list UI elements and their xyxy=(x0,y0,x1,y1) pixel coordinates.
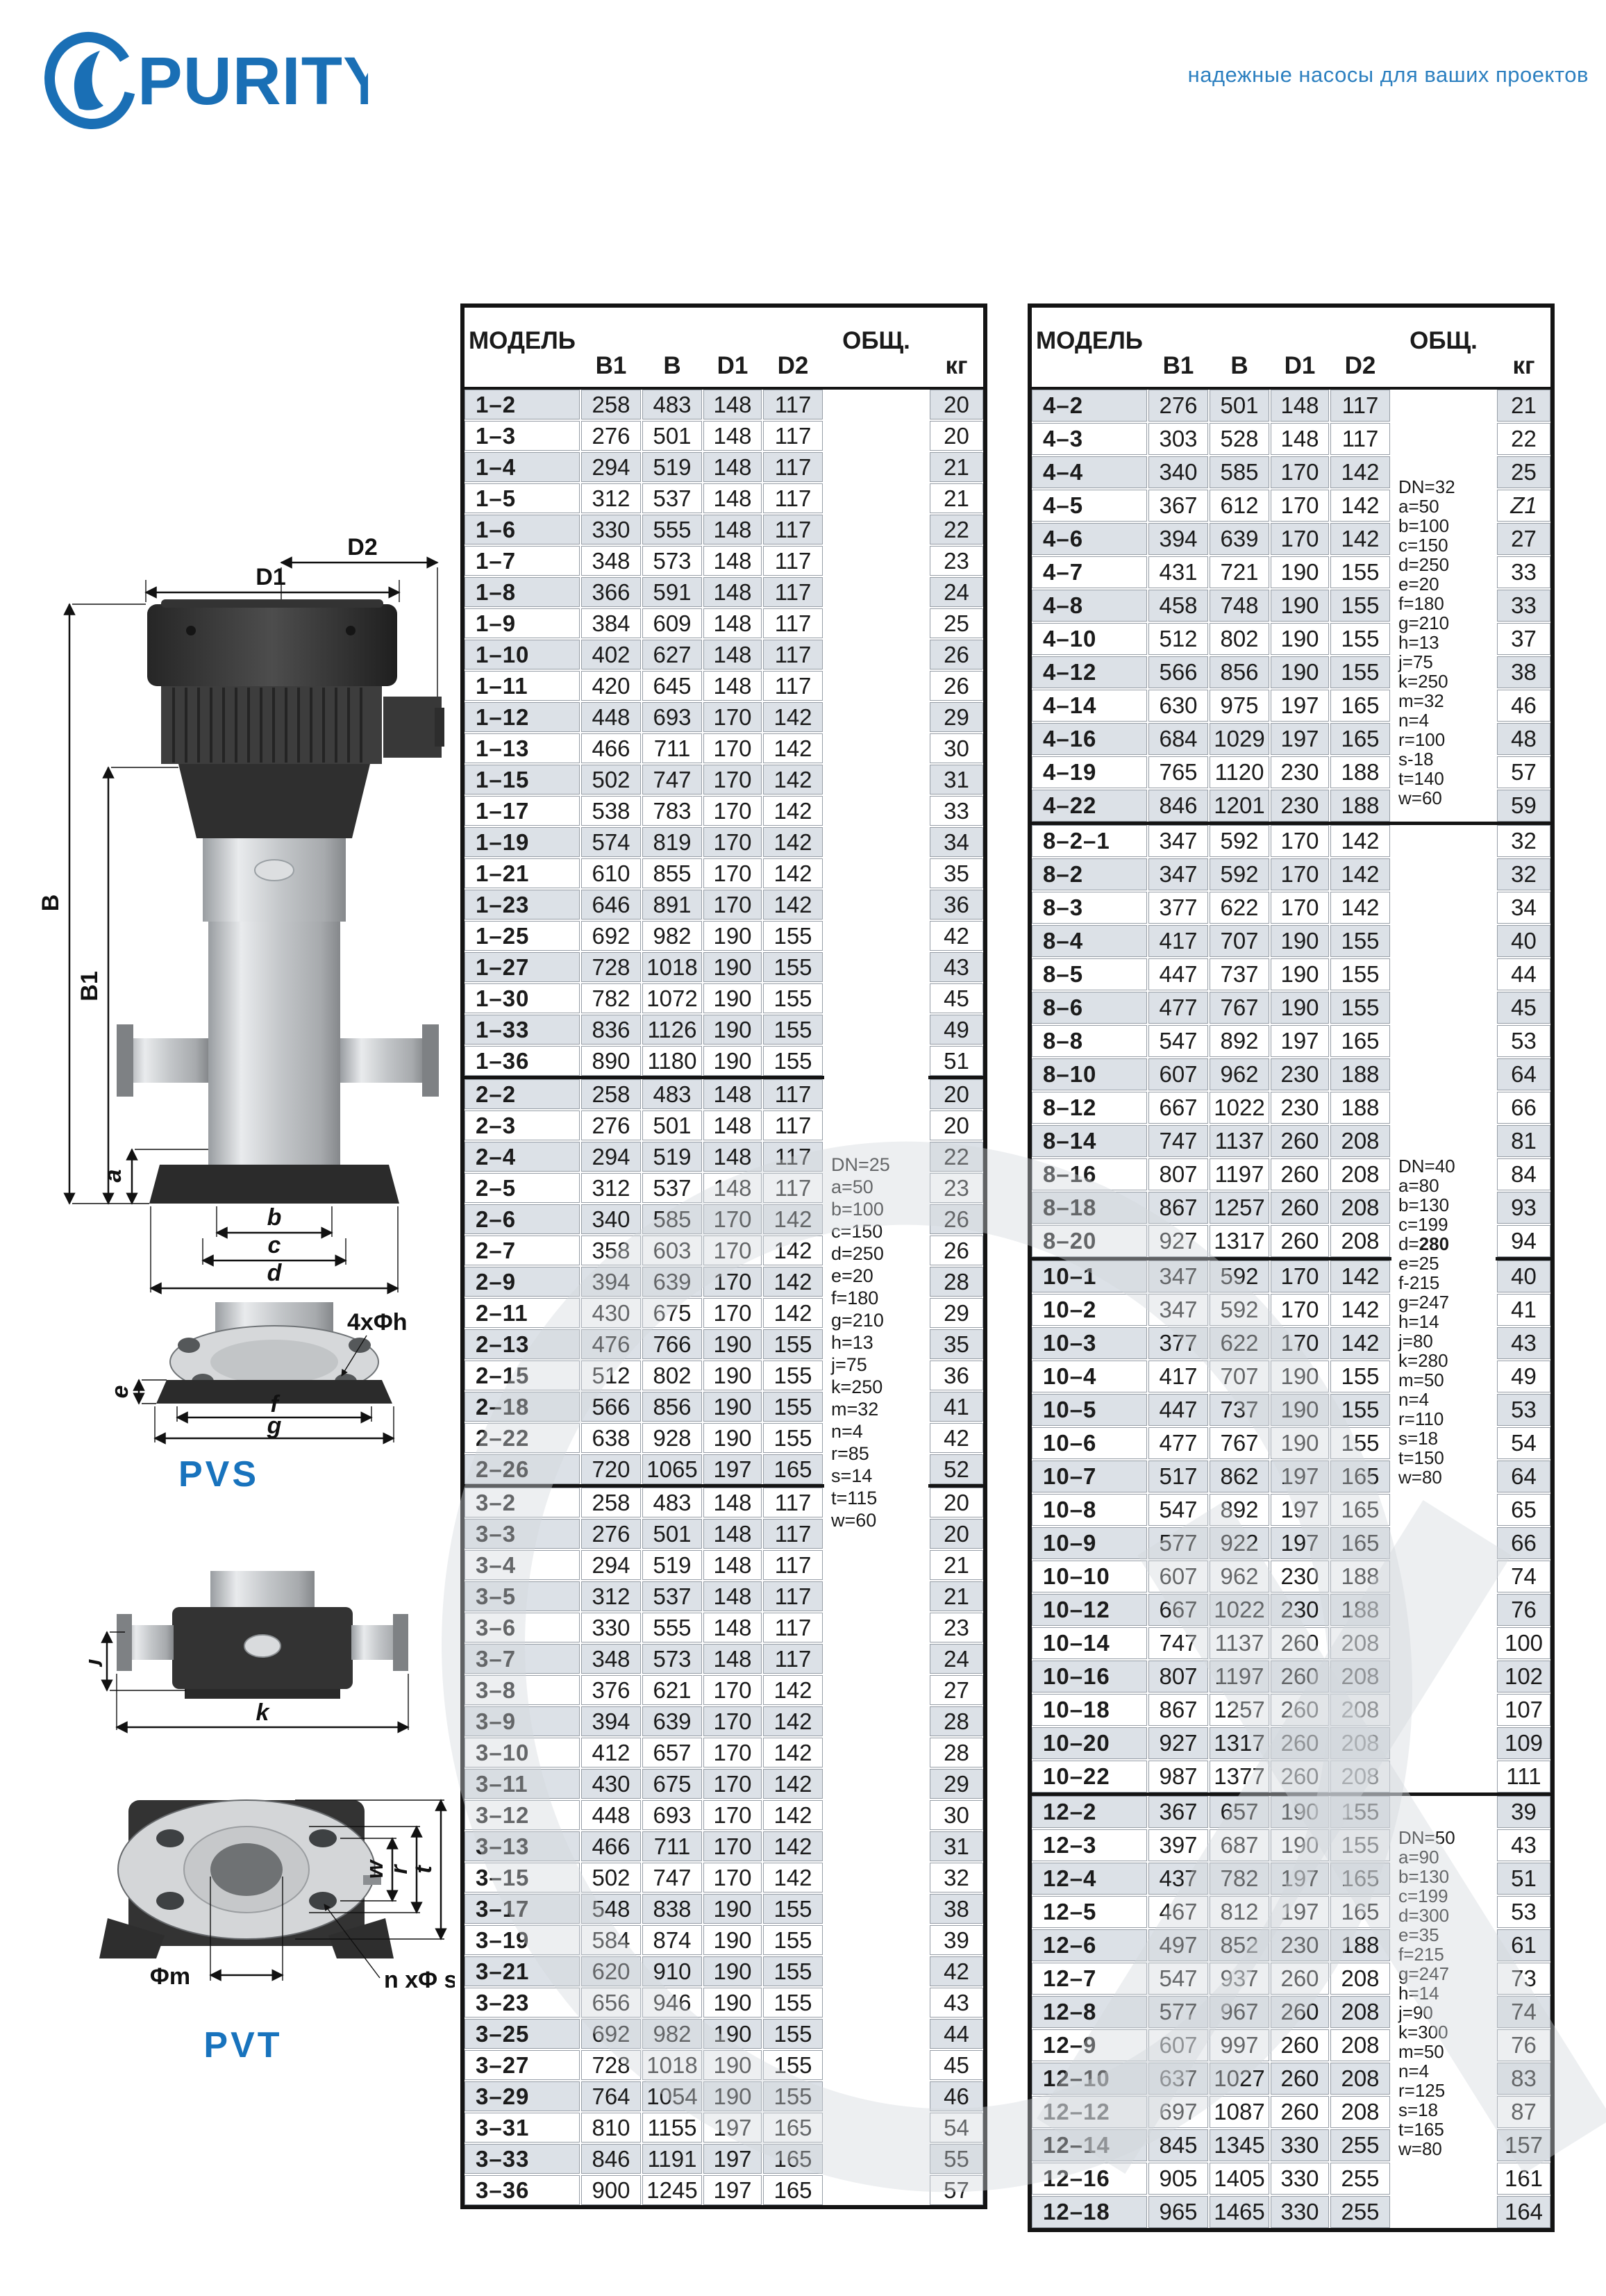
dimension-cell: 477 xyxy=(1148,1426,1209,1460)
dimension-cell: 148 xyxy=(703,639,762,670)
dimension-cell: 437 xyxy=(1148,1862,1209,1895)
dimension-cell: 276 xyxy=(580,420,642,451)
dimension-cell: 417 xyxy=(1148,924,1209,958)
dimension-cell: 891 xyxy=(642,889,703,920)
dimension-cell: 807 xyxy=(1148,1158,1209,1191)
dimension-cell: 1197 xyxy=(1209,1158,1270,1191)
weight-cell: 32 xyxy=(1496,824,1553,858)
model-cell: 1–23 xyxy=(462,889,580,920)
dimension-cell: 155 xyxy=(1330,556,1391,589)
dimension-cell: 190 xyxy=(1270,924,1330,958)
dimension-cell: 1029 xyxy=(1209,722,1270,756)
dimension-cell: 566 xyxy=(1148,656,1209,689)
dimension-cell: 170 xyxy=(1270,824,1330,858)
dimension-cell: 142 xyxy=(762,1297,823,1329)
dimension-cell: 890 xyxy=(580,1045,642,1078)
dimension-cell: 117 xyxy=(762,639,823,670)
dimension-cell: 577 xyxy=(1148,1526,1209,1560)
weight-cell: 26 xyxy=(929,1204,985,1235)
dimension-cell: 927 xyxy=(1148,1224,1209,1259)
column-header: МОДЕЛЬ xyxy=(1030,306,1148,388)
dimension-cell: 592 xyxy=(1209,1259,1270,1294)
weight-cell: 27 xyxy=(929,1674,985,1706)
dimension-cell: 477 xyxy=(1148,991,1209,1024)
dimension-cell: 312 xyxy=(580,483,642,514)
dimension-cell: 190 xyxy=(703,951,762,983)
spec-line: r=85 xyxy=(831,1442,928,1465)
weight-cell: 34 xyxy=(1496,891,1553,924)
weight-cell: 43 xyxy=(929,1987,985,2018)
spec-line: m=32 xyxy=(1398,691,1496,710)
dimension-cell: 170 xyxy=(703,1862,762,1893)
dimension-cell: 607 xyxy=(1148,1058,1209,1091)
model-cell: 1–33 xyxy=(462,1014,580,1045)
model-cell: 10–2 xyxy=(1030,1293,1148,1326)
dimension-cell: 276 xyxy=(580,1110,642,1141)
model-cell: 2–18 xyxy=(462,1391,580,1422)
dimension-cell: 417 xyxy=(1148,1360,1209,1393)
dimension-cell: 155 xyxy=(1330,656,1391,689)
dimension-cell: 258 xyxy=(580,388,642,420)
weight-cell: 107 xyxy=(1496,1693,1553,1727)
dimension-cell: 846 xyxy=(580,2143,642,2174)
weight-cell: 28 xyxy=(929,1706,985,1737)
model-cell: 1–21 xyxy=(462,858,580,889)
model-cell: 1–8 xyxy=(462,576,580,608)
dimension-cell: 260 xyxy=(1270,1760,1330,1795)
dimension-cell: 412 xyxy=(580,1737,642,1768)
dimension-cell: 148 xyxy=(703,1612,762,1643)
weight-cell: 164 xyxy=(1496,2195,1553,2230)
dimension-cell: 208 xyxy=(1330,1627,1391,1660)
dimension-cell: 197 xyxy=(703,2174,762,2207)
dimension-cell: 148 xyxy=(703,608,762,639)
pvs-side-view: j k xyxy=(89,1571,415,1745)
dimension-cell: 862 xyxy=(1209,1460,1270,1493)
dimension-cell: 1022 xyxy=(1209,1091,1270,1124)
model-cell: 4–22 xyxy=(1030,789,1148,824)
dimension-cell: 584 xyxy=(580,1924,642,1956)
dimension-cell: 155 xyxy=(1330,924,1391,958)
model-cell: 3–8 xyxy=(462,1674,580,1706)
dimension-cell: 170 xyxy=(1270,489,1330,522)
dimension-cell: 155 xyxy=(1330,1360,1391,1393)
dimension-cell: 165 xyxy=(1330,1493,1391,1526)
dimension-cell: 812 xyxy=(1209,1895,1270,1929)
dimension-cell: 117 xyxy=(762,1110,823,1141)
dimension-cell: 190 xyxy=(1270,1829,1330,1862)
weight-cell: 20 xyxy=(929,1486,985,1519)
weight-cell: 109 xyxy=(1496,1727,1553,1760)
dimension-cell: 208 xyxy=(1330,1191,1391,1224)
dimension-cell: 476 xyxy=(580,1329,642,1360)
dimension-cell: 117 xyxy=(762,1643,823,1674)
model-cell: 12–12 xyxy=(1030,2095,1148,2129)
dimension-cell: 188 xyxy=(1330,1593,1391,1627)
model-cell: 4–16 xyxy=(1030,722,1148,756)
spec-line: DN=50 xyxy=(1398,1828,1496,1847)
purity-logo-icon xyxy=(38,26,142,134)
dimension-cell: 230 xyxy=(1270,1929,1330,1962)
model-cell: 12–14 xyxy=(1030,2129,1148,2162)
weight-cell: 44 xyxy=(1496,958,1553,991)
model-cell: 1–15 xyxy=(462,764,580,795)
dimension-cell: 684 xyxy=(1148,722,1209,756)
weight-cell: 30 xyxy=(929,1799,985,1831)
spec-line: c=150 xyxy=(1398,535,1496,555)
weight-cell: 157 xyxy=(1496,2129,1553,2162)
weight-cell: 20 xyxy=(929,1518,985,1549)
model-cell: 1–36 xyxy=(462,1045,580,1078)
weight-cell: 49 xyxy=(929,1014,985,1045)
dimension-cell: 258 xyxy=(580,1078,642,1110)
purity-logo: PURITY xyxy=(35,26,368,134)
spec-line: k=300 xyxy=(1398,2022,1496,2042)
dimension-cell: 190 xyxy=(1270,1360,1330,1393)
dimension-cell: 155 xyxy=(762,1045,823,1078)
weight-cell: 93 xyxy=(1496,1191,1553,1224)
dimension-cell: 537 xyxy=(642,1581,703,1612)
weight-cell: 22 xyxy=(929,514,985,545)
dimension-cell: 975 xyxy=(1209,689,1270,722)
dimension-cell: 170 xyxy=(703,889,762,920)
spec-line: d=250 xyxy=(1398,555,1496,574)
weight-cell: 20 xyxy=(929,1078,985,1110)
dimension-cell: 962 xyxy=(1209,1058,1270,1091)
spec-line: b=130 xyxy=(1398,1867,1496,1886)
dimension-cell: 148 xyxy=(703,1110,762,1141)
dimension-cell: 707 xyxy=(1209,1360,1270,1393)
model-cell: 2–9 xyxy=(462,1266,580,1297)
pvt-flange-view: Φm n xΦ s w r t xyxy=(66,1772,455,2005)
dimension-cell: 1054 xyxy=(642,2081,703,2112)
model-cell: 8–18 xyxy=(1030,1191,1148,1224)
dimension-cell: 630 xyxy=(1148,689,1209,722)
pvs-dimension-drawing: D2 D1 B B1 a b c d xyxy=(42,538,444,1445)
dimension-cell: 165 xyxy=(1330,722,1391,756)
dimension-cell: 946 xyxy=(642,1987,703,2018)
dimension-cell: 397 xyxy=(1148,1829,1209,1862)
dimension-cell: 148 xyxy=(703,1643,762,1674)
weight-cell: 38 xyxy=(929,1893,985,1924)
dimension-cell: 783 xyxy=(642,795,703,826)
dimension-cell: 155 xyxy=(1330,1829,1391,1862)
model-cell: 1–2 xyxy=(462,388,580,420)
dimension-cell: 208 xyxy=(1330,1124,1391,1158)
dimension-cell: 230 xyxy=(1270,756,1330,789)
dimension-cell: 340 xyxy=(580,1204,642,1235)
dimension-cell: 260 xyxy=(1270,1158,1330,1191)
dimension-cell: 117 xyxy=(762,1486,823,1519)
dimension-cell: 190 xyxy=(1270,958,1330,991)
dimension-cell: 188 xyxy=(1330,756,1391,789)
spec-line: k=280 xyxy=(1398,1351,1496,1370)
spec-line: w=60 xyxy=(831,1509,928,1531)
dimension-cell: 170 xyxy=(703,1737,762,1768)
weight-cell: 94 xyxy=(1496,1224,1553,1259)
dimension-cell: 501 xyxy=(642,1110,703,1141)
weight-cell: 42 xyxy=(929,1956,985,1987)
dimension-cell: 765 xyxy=(1148,756,1209,789)
spec-line: m=32 xyxy=(831,1398,928,1420)
model-cell: 10–22 xyxy=(1030,1760,1148,1795)
spec-line: j=90 xyxy=(1398,2003,1496,2022)
dimension-cell: 838 xyxy=(642,1893,703,1924)
dimension-cell: 982 xyxy=(642,920,703,951)
weight-cell: 40 xyxy=(1496,924,1553,958)
dimension-cell: 155 xyxy=(1330,589,1391,622)
model-cell: 4–8 xyxy=(1030,589,1148,622)
weight-cell: 66 xyxy=(1496,1091,1553,1124)
dimension-cell: 208 xyxy=(1330,1693,1391,1727)
dimension-cell: 330 xyxy=(580,514,642,545)
weight-cell: 26 xyxy=(929,639,985,670)
dimension-cell: 294 xyxy=(580,1141,642,1172)
dimension-cell: 720 xyxy=(580,1454,642,1486)
spec-line: s=18 xyxy=(1398,1429,1496,1448)
dimension-cell: 347 xyxy=(1148,858,1209,891)
dim-label-b1: B1 xyxy=(76,971,103,1001)
model-cell: 3–27 xyxy=(462,2049,580,2081)
dimension-cell: 142 xyxy=(1330,891,1391,924)
spec-line: b=100 xyxy=(831,1198,928,1220)
spec-line: g=247 xyxy=(1398,1964,1496,1983)
dimension-cell: 142 xyxy=(1330,456,1391,489)
weight-cell: 26 xyxy=(929,1235,985,1266)
dimension-cell: 802 xyxy=(1209,622,1270,656)
weight-cell: 53 xyxy=(1496,1393,1553,1426)
dim-label-m: Φm xyxy=(150,1963,190,1990)
dimension-cell: 170 xyxy=(703,733,762,764)
dimension-cell: 965 xyxy=(1148,2195,1209,2230)
weight-cell: 45 xyxy=(1496,991,1553,1024)
dimension-cell: 190 xyxy=(703,1924,762,1956)
dimension-cell: 766 xyxy=(642,1329,703,1360)
spec-line: g=247 xyxy=(1398,1292,1496,1312)
dimension-cell: 330 xyxy=(1270,2162,1330,2195)
dimension-cell: 230 xyxy=(1270,1593,1330,1627)
dimension-cell: 117 xyxy=(762,388,823,420)
dimension-cell: 622 xyxy=(1209,891,1270,924)
dimension-cell: 170 xyxy=(703,1204,762,1235)
dimension-cell: 260 xyxy=(1270,2095,1330,2129)
dimension-cell: 260 xyxy=(1270,1660,1330,1693)
table-row: 1–2258483148117DN=25a=50b=100c=150d=250e… xyxy=(462,388,985,420)
model-cell: 4–2 xyxy=(1030,388,1148,422)
spec-line: e=35 xyxy=(1398,1925,1496,1945)
model-cell: 4–12 xyxy=(1030,656,1148,689)
dimension-cell: 982 xyxy=(642,2018,703,2049)
spec-line: e=20 xyxy=(1398,574,1496,594)
dimension-cell: 747 xyxy=(642,1862,703,1893)
dimension-cell: 117 xyxy=(762,1172,823,1204)
model-cell: 8–2–1 xyxy=(1030,824,1148,858)
dimension-cell: 170 xyxy=(1270,456,1330,489)
dimension-cell: 276 xyxy=(1148,388,1209,422)
dim-label-t: t xyxy=(410,1865,437,1874)
dimension-cell: 170 xyxy=(703,701,762,733)
dimension-cell: 155 xyxy=(762,2081,823,2112)
dimension-cell: 260 xyxy=(1270,1124,1330,1158)
dimension-cell: 627 xyxy=(642,639,703,670)
logo-text: PURITY xyxy=(137,43,368,119)
weight-cell: 45 xyxy=(929,2049,985,2081)
weight-cell: 35 xyxy=(929,1329,985,1360)
dimension-cell: 519 xyxy=(642,1141,703,1172)
model-cell: 8–3 xyxy=(1030,891,1148,924)
dimension-cell: 657 xyxy=(1209,1795,1270,1829)
model-cell: 2–5 xyxy=(462,1172,580,1204)
dimension-cell: 165 xyxy=(762,1454,823,1486)
dimension-cell: 836 xyxy=(580,1014,642,1045)
dimension-cell: 190 xyxy=(703,2018,762,2049)
dimension-cell: 142 xyxy=(762,1706,823,1737)
dimension-cell: 519 xyxy=(642,1549,703,1581)
spec-line: n=4 xyxy=(1398,2061,1496,2081)
spec-line: f-215 xyxy=(1398,1273,1496,1292)
weight-cell: 66 xyxy=(1496,1526,1553,1560)
dimension-cell: 142 xyxy=(1330,1326,1391,1360)
dimension-cell: 1072 xyxy=(642,983,703,1014)
model-cell: 8–8 xyxy=(1030,1024,1148,1058)
weight-cell: 64 xyxy=(1496,1460,1553,1493)
dim-label-d: d xyxy=(267,1260,283,1286)
dimension-cell: 142 xyxy=(762,1235,823,1266)
weight-cell: 61 xyxy=(1496,1929,1553,1962)
spec-line: d=250 xyxy=(831,1242,928,1265)
dimension-cell: 260 xyxy=(1270,1224,1330,1259)
weight-cell: 36 xyxy=(929,1360,985,1391)
weight-cell: 37 xyxy=(1496,622,1553,656)
dimension-cell: 466 xyxy=(580,733,642,764)
spec-line: d=300 xyxy=(1398,1906,1496,1925)
dimension-cell: 377 xyxy=(1148,891,1209,924)
spec-line: t=150 xyxy=(1398,1448,1496,1467)
model-cell: 8–12 xyxy=(1030,1091,1148,1124)
weight-cell: 76 xyxy=(1496,1593,1553,1627)
dimension-cell: 1065 xyxy=(642,1454,703,1486)
dim-label-w: w xyxy=(362,1858,388,1879)
dimension-cell: 737 xyxy=(1209,1393,1270,1426)
weight-cell: 22 xyxy=(1496,422,1553,456)
dimension-cell: 190 xyxy=(703,1956,762,1987)
spec-line: h=14 xyxy=(1398,1312,1496,1331)
weight-cell: 53 xyxy=(1496,1895,1553,1929)
spec-line: t=165 xyxy=(1398,2120,1496,2139)
column-header: B xyxy=(642,306,703,388)
dim-label-c: c xyxy=(268,1232,281,1258)
model-cell: 4–3 xyxy=(1030,422,1148,456)
dimension-cell: 347 xyxy=(1148,824,1209,858)
dimension-cell: 538 xyxy=(580,795,642,826)
model-cell: 3–4 xyxy=(462,1549,580,1581)
dimension-cell: 612 xyxy=(1209,489,1270,522)
model-cell: 4–10 xyxy=(1030,622,1148,656)
dimension-cell: 255 xyxy=(1330,2162,1391,2195)
dimension-cell: 675 xyxy=(642,1297,703,1329)
weight-cell: 46 xyxy=(929,2081,985,2112)
dimension-cell: 142 xyxy=(762,1737,823,1768)
weight-cell: 44 xyxy=(929,2018,985,2049)
dimension-cell: 1197 xyxy=(1209,1660,1270,1693)
weight-cell: 74 xyxy=(1496,1995,1553,2029)
spec-line: m=50 xyxy=(1398,2042,1496,2061)
dimension-cell: 155 xyxy=(762,951,823,983)
dimension-cell: 170 xyxy=(703,1768,762,1799)
spec-line: s=18 xyxy=(1398,2100,1496,2120)
dimension-cell: 148 xyxy=(703,1141,762,1172)
dimension-cell: 1022 xyxy=(1209,1593,1270,1627)
dimension-cell: 155 xyxy=(1330,1393,1391,1426)
dimension-cell: 748 xyxy=(1209,589,1270,622)
dimension-cell: 330 xyxy=(1270,2195,1330,2230)
dimension-cell: 208 xyxy=(1330,1760,1391,1795)
spec-line: f=180 xyxy=(1398,594,1496,613)
dimension-cell: 148 xyxy=(703,1172,762,1204)
dimension-cell: 555 xyxy=(642,1612,703,1643)
spec-line: DN=32 xyxy=(1398,477,1496,497)
dimension-cell: 537 xyxy=(642,1172,703,1204)
spec-line: a=90 xyxy=(1398,1847,1496,1867)
dimension-cell: 155 xyxy=(1330,958,1391,991)
dimension-cell: 170 xyxy=(703,1297,762,1329)
dimension-cell: 358 xyxy=(580,1235,642,1266)
column-header: ОБЩ. xyxy=(823,306,929,388)
column-header: D2 xyxy=(762,306,823,388)
dimension-cell: 430 xyxy=(580,1768,642,1799)
dimension-cell: 197 xyxy=(1270,1895,1330,1929)
dimension-cell: 1027 xyxy=(1209,2062,1270,2095)
dimension-cell: 190 xyxy=(703,920,762,951)
model-cell: 8–10 xyxy=(1030,1058,1148,1091)
dimension-cell: 165 xyxy=(762,2174,823,2207)
dimension-cell: 900 xyxy=(580,2174,642,2207)
weight-cell: 21 xyxy=(929,1549,985,1581)
weight-cell: 49 xyxy=(1496,1360,1553,1393)
dimension-cell: 197 xyxy=(1270,1862,1330,1895)
model-cell: 4–6 xyxy=(1030,522,1148,556)
dimension-cell: 483 xyxy=(642,1078,703,1110)
dimension-cell: 1018 xyxy=(642,2049,703,2081)
model-cell: 3–5 xyxy=(462,1581,580,1612)
weight-cell: 27 xyxy=(1496,522,1553,556)
dimension-cell: 967 xyxy=(1209,1995,1270,2029)
dimension-cell: 502 xyxy=(580,1862,642,1893)
model-cell: 10–10 xyxy=(1030,1560,1148,1593)
model-cell: 4–7 xyxy=(1030,556,1148,589)
dimension-cell: 148 xyxy=(703,388,762,420)
spec-line: DN=40 xyxy=(1398,1156,1496,1176)
dimension-cell: 208 xyxy=(1330,2062,1391,2095)
dimension-cell: 155 xyxy=(762,920,823,951)
dimension-cell: 892 xyxy=(1209,1493,1270,1526)
spec-line: DN=25 xyxy=(831,1154,928,1176)
dimension-cell: 547 xyxy=(1148,1962,1209,1995)
weight-cell: 31 xyxy=(929,1831,985,1862)
weight-cell: 48 xyxy=(1496,722,1553,756)
weight-cell: 55 xyxy=(929,2143,985,2174)
dimension-cell: 367 xyxy=(1148,1795,1209,1829)
dimension-cell: 208 xyxy=(1330,1660,1391,1693)
model-cell: 12–10 xyxy=(1030,2062,1148,2095)
dimension-cell: 155 xyxy=(762,1422,823,1454)
dimension-cell: 639 xyxy=(642,1706,703,1737)
dimension-cell: 230 xyxy=(1270,1058,1330,1091)
dim-label-k: k xyxy=(256,1699,271,1726)
spec-line: s=14 xyxy=(831,1465,928,1487)
dimension-cell: 148 xyxy=(703,514,762,545)
spec-line: h=14 xyxy=(1398,1983,1496,2003)
